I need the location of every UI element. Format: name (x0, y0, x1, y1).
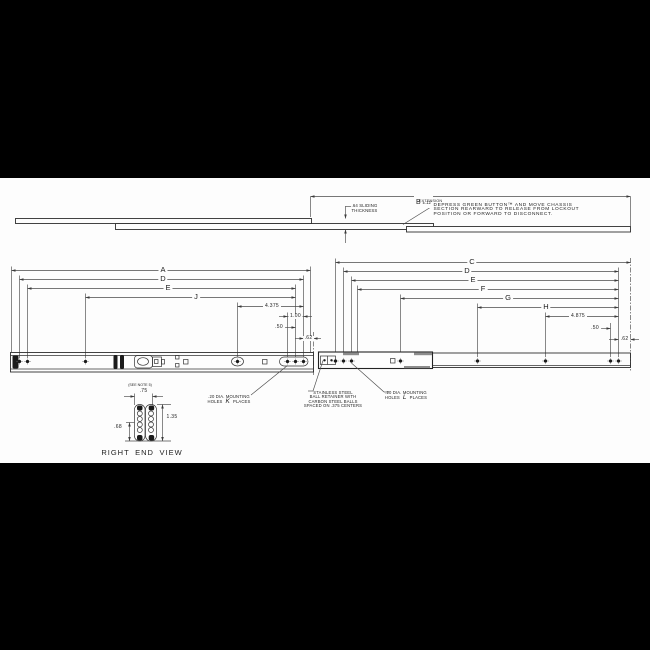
dim-62-left-label: .62 (303, 336, 315, 341)
dim-a-label: A (158, 266, 167, 274)
callout-line3: POSITION OR FORWARD TO DISCONNECT. (434, 213, 580, 218)
green-button-callout: DEPRESS GREEN BUTTON™ AND MOVE CHASSIS S… (434, 204, 580, 219)
l-mounting-holes-note: .20 DIA. MOUNTING HOLESLPLACES (385, 391, 427, 400)
dim-62-right-label: .62 (619, 337, 631, 342)
dim-c-label: C (467, 258, 476, 266)
dim-d-left-label: D (158, 275, 167, 283)
drawing-canvas: B±.12 EXTENSION .64 SLIDING THICKNESS DE… (0, 0, 650, 650)
k-note-places-word: PLACES (233, 399, 250, 404)
drawing-sheet (0, 178, 650, 463)
l-note-letter: L (403, 394, 407, 401)
k-note-line2: HOLESKPLACES (208, 400, 251, 405)
dim-f-label: F (479, 285, 488, 293)
end-view-title: RIGHT END VIEW (101, 449, 182, 457)
ball-retainer-note: STAINLESS STEEL BALL RETAINER WITH CARBO… (304, 391, 362, 409)
dim-75-label: .75 (138, 389, 150, 394)
l-note-places-word: PLACES (410, 395, 427, 400)
l-note-holes-word: HOLES (385, 395, 400, 400)
dim-4375-label: 4.375 (263, 304, 281, 309)
sliding-thickness-line1: .64 SLIDING (352, 203, 378, 208)
l-note-line2: HOLESLPLACES (385, 396, 427, 401)
dim-50-left-label: .50 (273, 325, 285, 330)
dim-j-label: J (192, 293, 200, 301)
dim-g-label: G (503, 294, 513, 302)
retainer-line4: SPACED ON .375 CENTERS (304, 404, 362, 408)
dim-d-right-label: D (462, 267, 471, 275)
k-mounting-holes-note: .20 DIA. MOUNTING HOLESKPLACES (208, 395, 251, 404)
k-note-letter: K (226, 398, 231, 405)
dim-4875-label: 4.875 (569, 314, 587, 319)
dim-50-right-label: .50 (589, 326, 601, 331)
sliding-thickness-line2: THICKNESS (352, 208, 378, 213)
dim-e-left-label: E (163, 284, 172, 292)
dim-68-label: .68 (114, 425, 122, 430)
dim-100-label: 1.00 (288, 314, 303, 319)
sliding-thickness-note: .64 SLIDING THICKNESS (352, 203, 378, 213)
dim-135-label: 1.35 (167, 415, 178, 420)
dim-h-label: H (541, 303, 550, 311)
dim-e-right-label: E (468, 276, 477, 284)
k-note-holes-word: HOLES (208, 399, 223, 404)
